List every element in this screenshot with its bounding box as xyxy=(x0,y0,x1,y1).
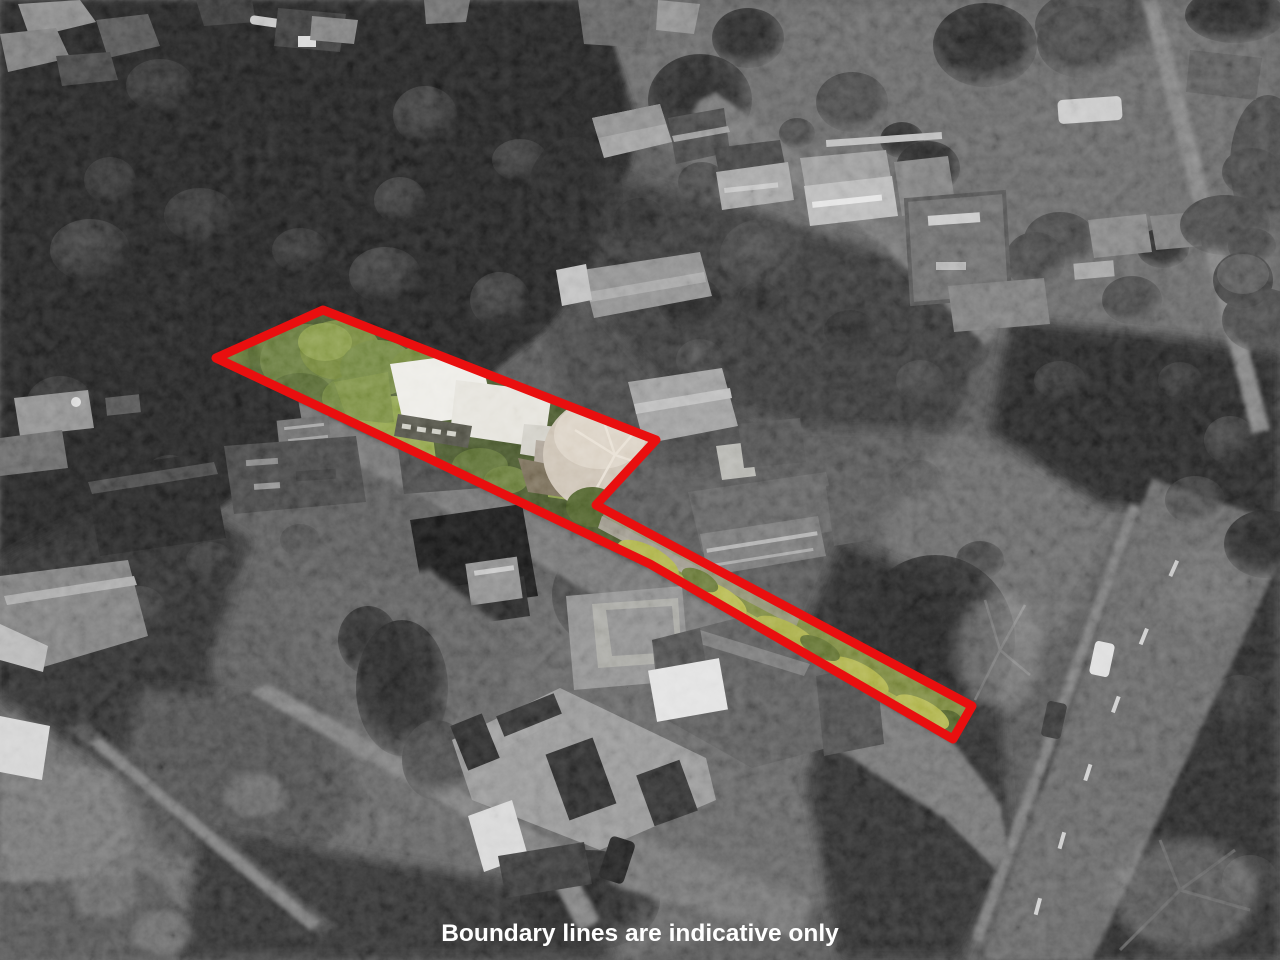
svg-text:Boundary lines are indicative: Boundary lines are indicative only xyxy=(441,920,839,947)
